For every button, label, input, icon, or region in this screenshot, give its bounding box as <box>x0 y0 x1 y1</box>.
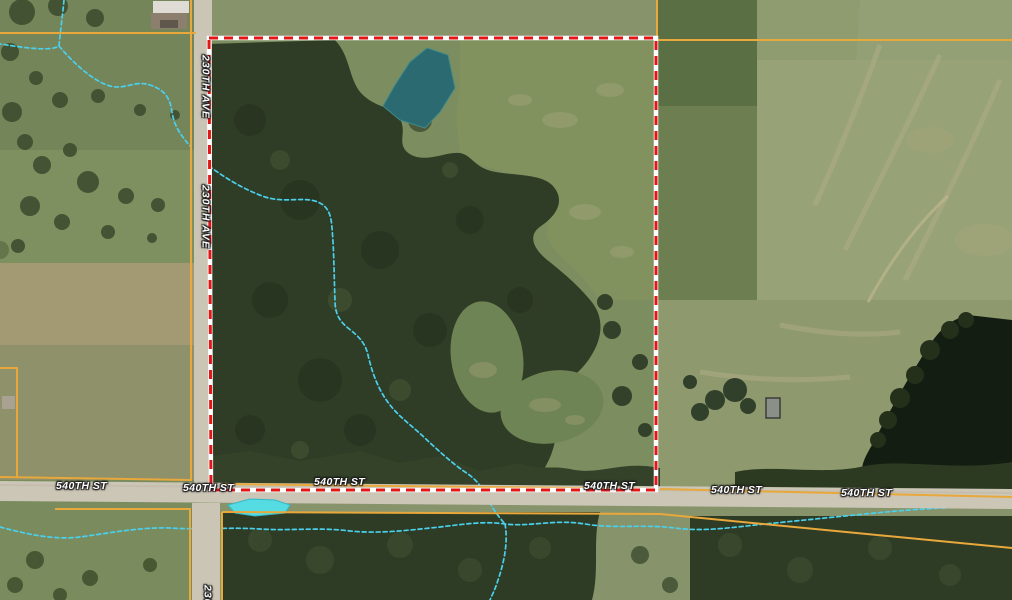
map-canvas[interactable]: 540TH ST 540TH ST 540TH ST 540TH ST 540T… <box>0 0 1012 600</box>
satellite-map-image <box>0 0 1012 600</box>
